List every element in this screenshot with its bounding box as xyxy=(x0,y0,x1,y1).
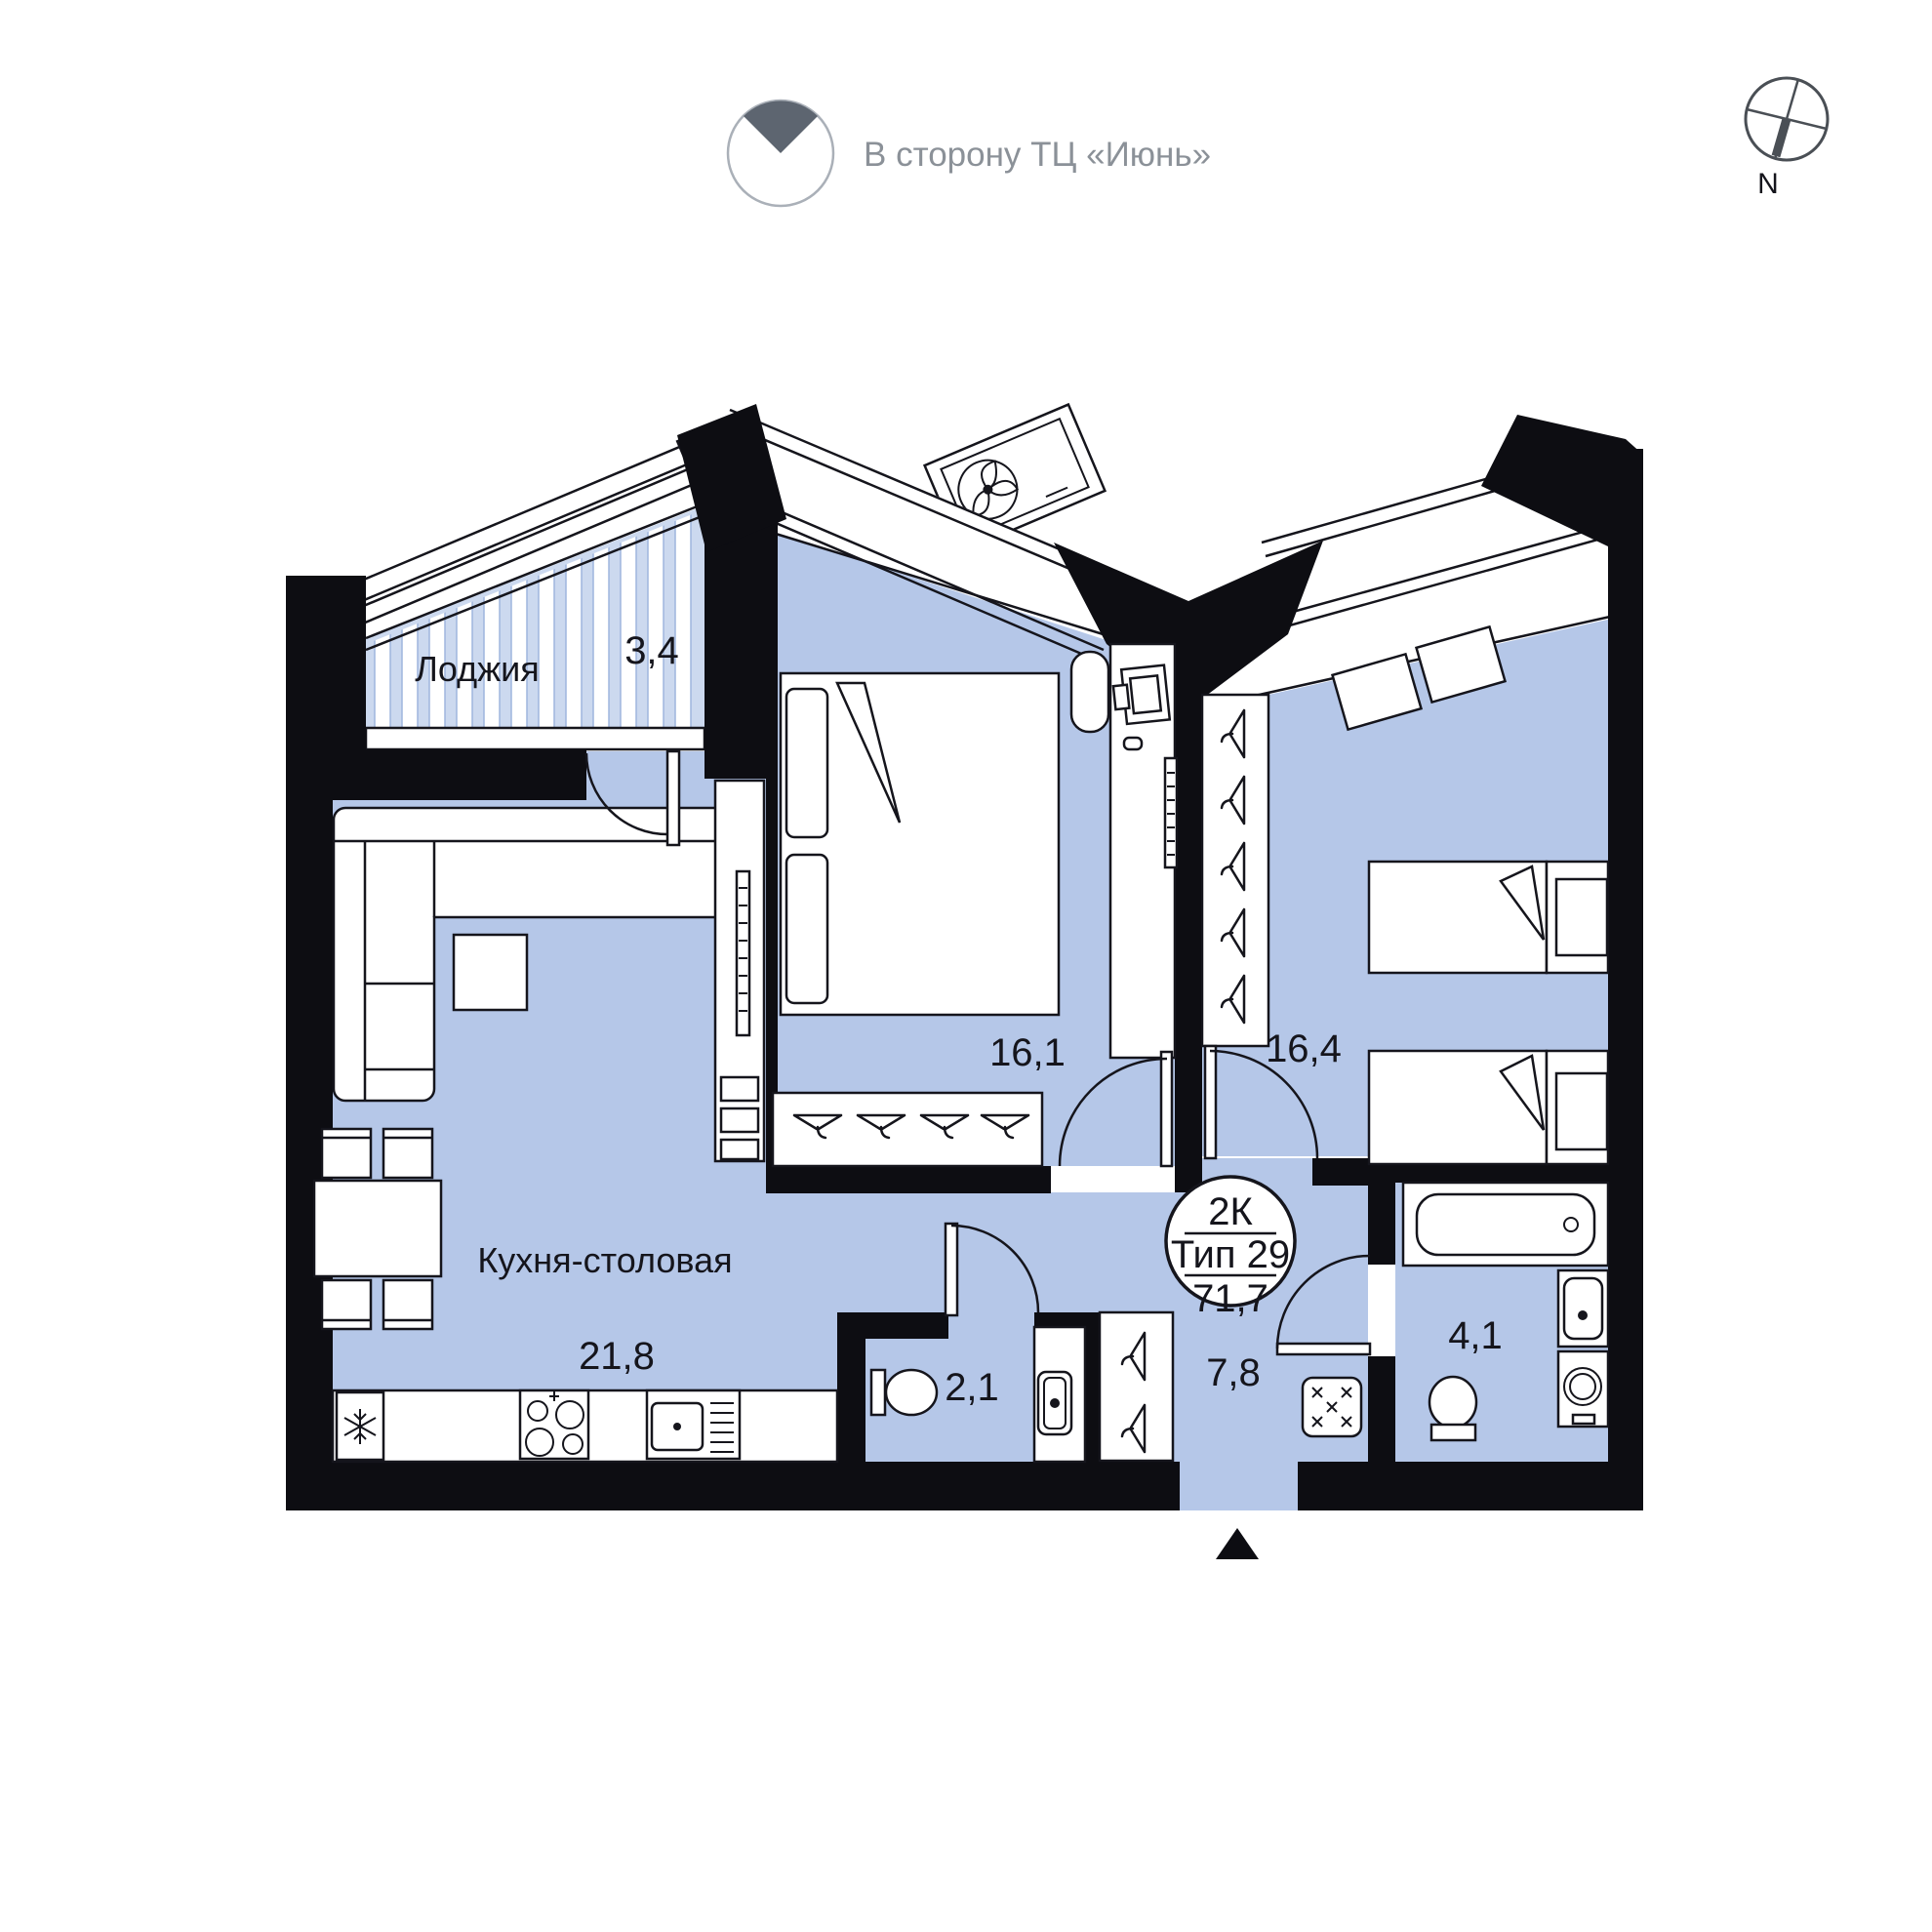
compass-north-label: N xyxy=(1757,168,1779,200)
bedroom1-bed xyxy=(781,673,1059,1015)
room-label-kitchen: Кухня-столовая xyxy=(477,1240,732,1280)
bedroom1-wardrobe xyxy=(773,1093,1042,1166)
entrance-arrow-icon xyxy=(1216,1528,1259,1559)
loggia-door-leaf xyxy=(667,751,679,845)
wc-toilet-tank xyxy=(871,1370,885,1415)
area-bedroom2: 16,4 xyxy=(1266,1027,1342,1070)
compass: N xyxy=(1746,78,1828,200)
hall-closet xyxy=(1100,1312,1173,1461)
bedroom2-door-leaf xyxy=(1205,1046,1216,1158)
dining-table xyxy=(314,1181,441,1276)
bedroom2-bed-a xyxy=(1369,862,1608,973)
area-bedroom1: 16,1 xyxy=(989,1031,1066,1074)
desk-chair xyxy=(1071,652,1108,732)
bathroom-door-leaf xyxy=(1277,1344,1370,1354)
area-bathroom: 4,1 xyxy=(1448,1314,1503,1357)
badge-rooms: 2К xyxy=(1208,1190,1253,1233)
area-hall: 7,8 xyxy=(1206,1351,1261,1394)
bedroom2-bed-b xyxy=(1369,1051,1608,1164)
wc-door-leaf xyxy=(946,1224,957,1315)
bath-toilet-icon xyxy=(1429,1377,1476,1428)
direction-annotation: В сторону ТЦ «Июнь» xyxy=(728,101,1211,206)
direction-label: В сторону ТЦ «Июнь» xyxy=(864,136,1211,174)
area-loggia: 3,4 xyxy=(624,629,679,672)
loggia-sill xyxy=(366,728,704,749)
entrance-floor xyxy=(1180,1462,1298,1510)
badge-area: 71,7 xyxy=(1192,1277,1268,1320)
floor-hatch xyxy=(1303,1378,1361,1436)
badge-type: Тип 29 xyxy=(1171,1233,1290,1276)
floorplan-canvas: В сторону ТЦ «Июнь» N xyxy=(0,0,1932,1932)
wc-toilet-icon xyxy=(886,1370,937,1415)
bedroom1-door-leaf xyxy=(1161,1052,1172,1166)
kitchen-counter xyxy=(333,1390,837,1462)
tv-console xyxy=(715,781,764,1161)
area-kitchen: 21,8 xyxy=(579,1335,655,1378)
area-wc: 2,1 xyxy=(945,1366,999,1409)
bedroom2-wardrobe xyxy=(1202,695,1268,1046)
room-label-loggia: Лоджия xyxy=(415,649,540,689)
coffee-table xyxy=(454,935,527,1010)
